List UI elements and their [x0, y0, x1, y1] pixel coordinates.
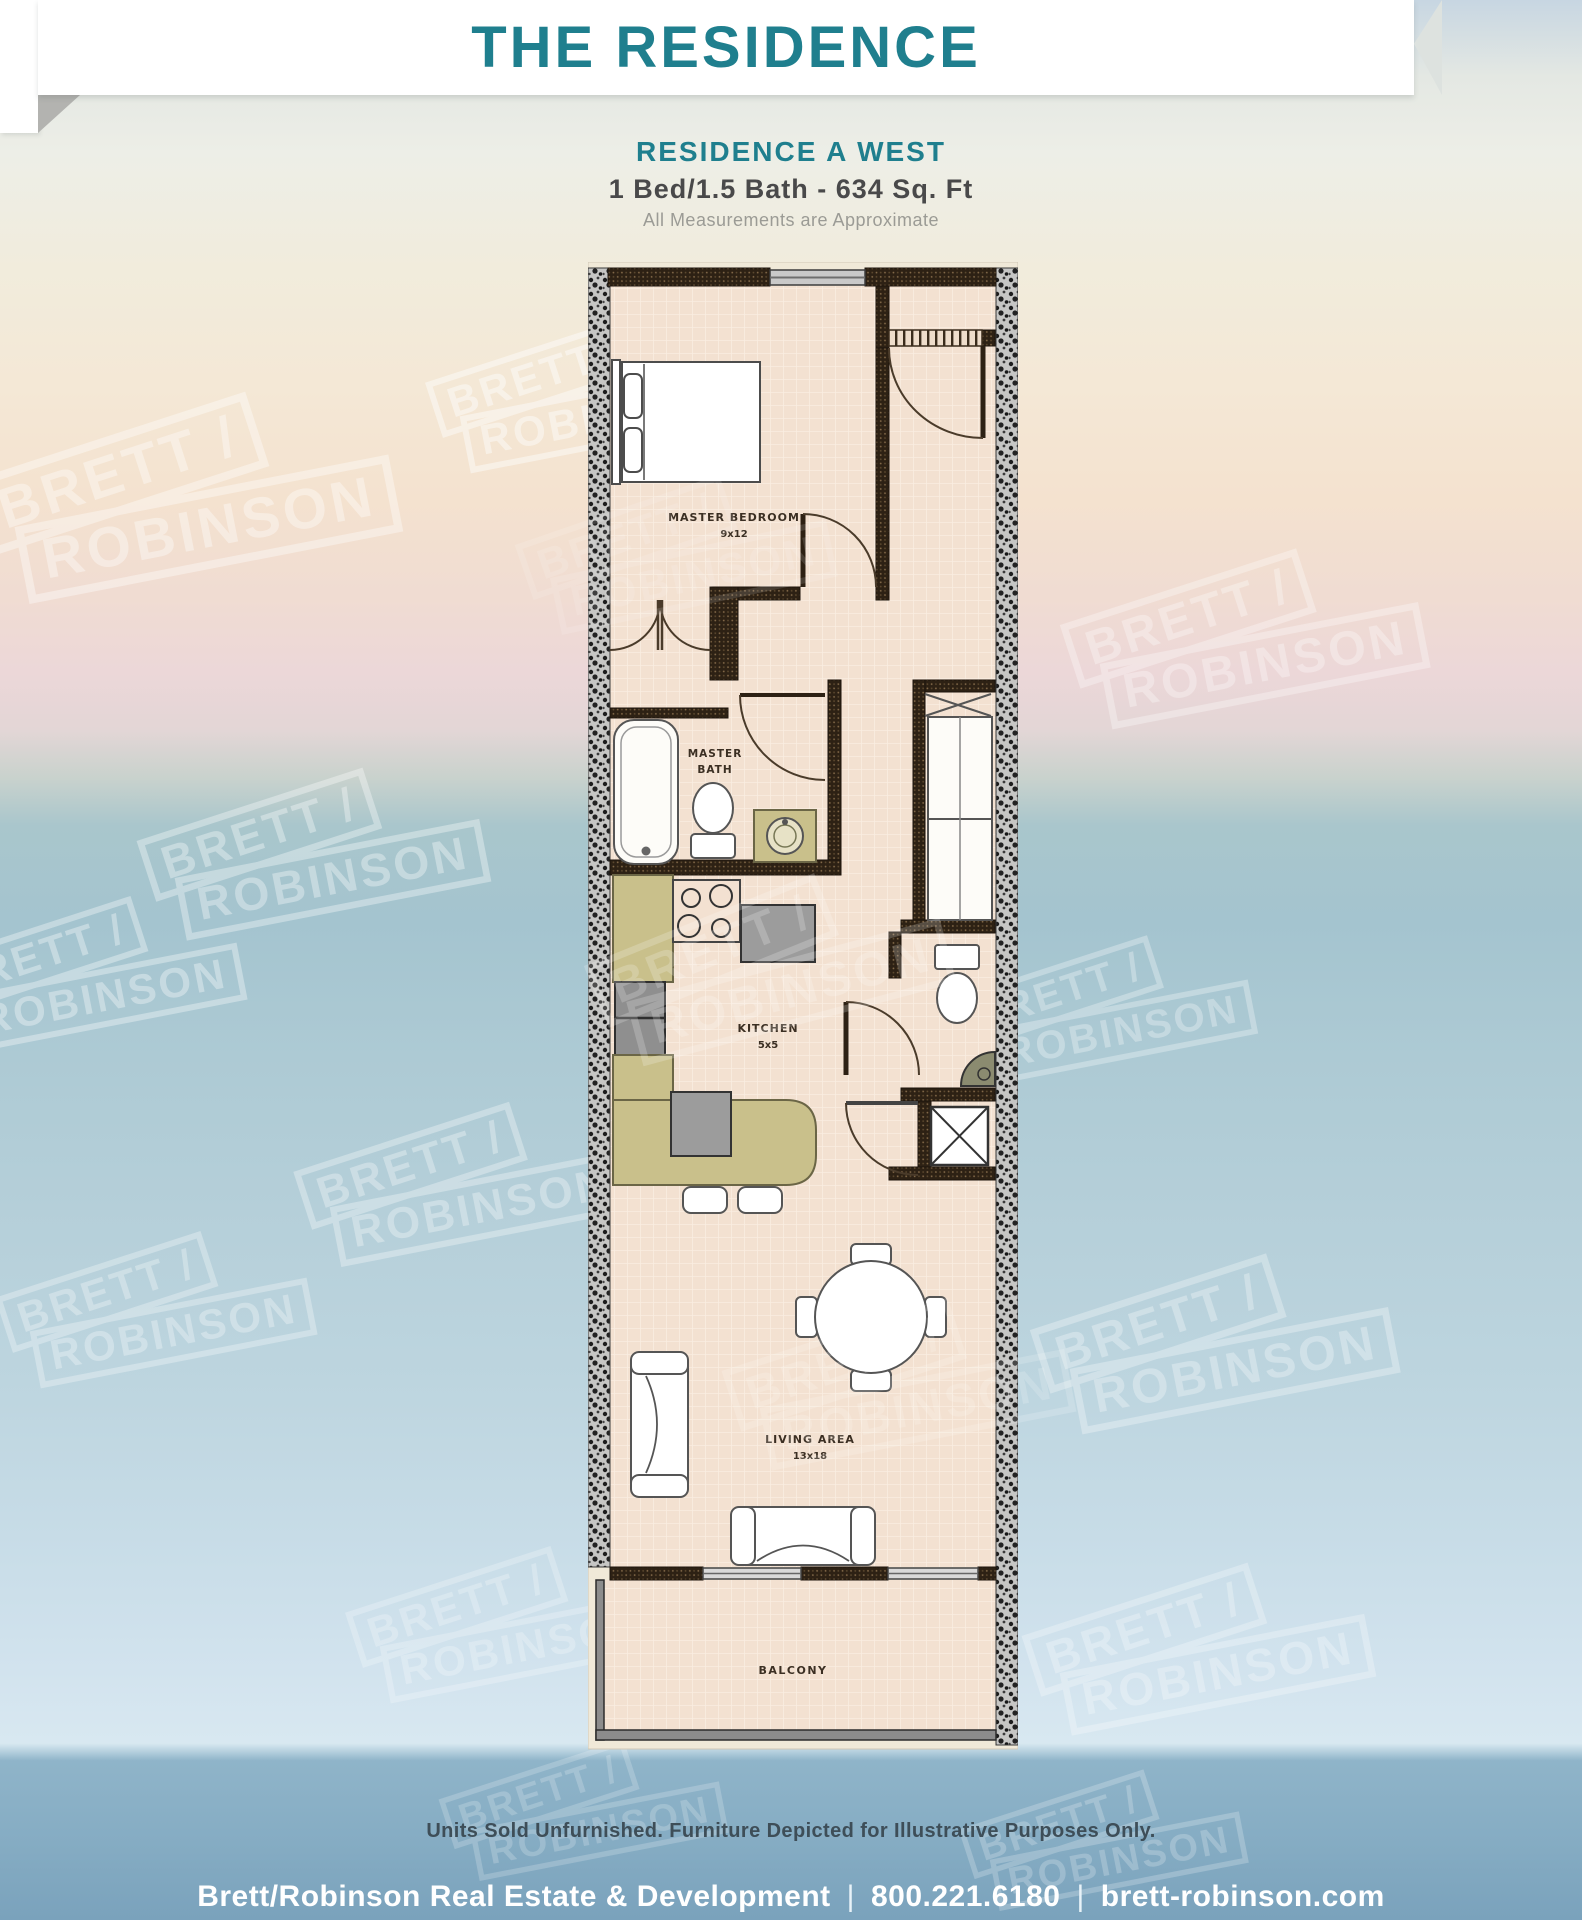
ribbon-left-fold — [38, 95, 80, 133]
brand-watermark: BRETT / ROBINSON — [345, 1544, 615, 1715]
footer-website: brett-robinson.com — [1101, 1880, 1385, 1913]
brand-watermark: BRETT / ROBINSON — [0, 894, 195, 1065]
brand-watermark-line2: ROBINSON — [175, 819, 492, 941]
brand-watermark: BRETT / ROBINSON — [136, 766, 433, 954]
window — [770, 270, 865, 285]
loveseat — [631, 1352, 688, 1497]
bed — [612, 360, 760, 484]
brand-watermark-line2: ROBINSON — [1060, 1614, 1377, 1736]
footer-company: Brett/Robinson Real Estate & Development — [197, 1880, 830, 1913]
refrigerator — [615, 982, 665, 1055]
brand-watermark-line2: ROBINSON — [30, 1278, 318, 1389]
master-bedroom-dims: 9x12 — [720, 529, 747, 540]
kitchen-counter — [613, 875, 673, 982]
balcony-label: BALCONY — [758, 1664, 827, 1677]
disclaimer-text: Units Sold Unfurnished. Furniture Depict… — [0, 1820, 1582, 1843]
island-sink — [671, 1092, 731, 1156]
brand-watermark: BRETT / ROBINSON — [1030, 1252, 1341, 1449]
brand-watermark-line2: ROBINSON — [1070, 1307, 1401, 1434]
footer-contact: Brett/Robinson Real Estate & Development… — [0, 1880, 1582, 1914]
footer-divider: | — [1060, 1880, 1100, 1913]
master-bath-label1: MASTER — [688, 748, 743, 760]
brand-watermark-line1: BRETT / — [0, 896, 149, 1018]
master-bedroom-label: MASTER BEDROOM — [668, 511, 800, 524]
brand-watermark: BRETT / ROBINSON — [1021, 1561, 1318, 1749]
kitchen-label: KITCHEN — [737, 1022, 798, 1035]
brand-watermark-line2: ROBINSON — [985, 979, 1259, 1084]
brand-watermark-line1: BRETT / — [1030, 1253, 1287, 1393]
vanity-sink — [754, 810, 816, 862]
stove — [673, 880, 740, 942]
brand-watermark-line1: BRETT / — [1022, 1562, 1268, 1696]
footer-divider: | — [831, 1880, 871, 1913]
page-title: THE RESIDENCE — [471, 14, 981, 81]
brand-watermark: BRETT / ROBINSON — [0, 390, 332, 621]
brand-watermark-line1: BRETT / — [137, 767, 383, 901]
living-area-label: LIVING AREA — [765, 1433, 855, 1446]
flyer-page: BRETT / ROBINSON BRETT / ROBINSON BRETT … — [0, 0, 1582, 1920]
brand-watermark-line2: ROBINSON — [1100, 602, 1431, 729]
ribbon-left-tab — [0, 0, 38, 133]
sofa — [731, 1507, 875, 1565]
kitchen-appliance — [741, 905, 815, 962]
brand-watermark-line1: BRETT / — [293, 1102, 528, 1230]
footer-phone: 800.221.6180 — [871, 1880, 1061, 1913]
brand-watermark-line1: BRETT / — [345, 1546, 569, 1668]
toilet — [691, 783, 735, 858]
ribbon-right-fold — [1414, 0, 1442, 95]
brand-watermark: BRETT / ROBINSON — [293, 1100, 577, 1280]
brand-watermark: BRETT / ROBINSON — [0, 1229, 265, 1400]
brand-watermark: BRETT / ROBINSON — [1060, 547, 1371, 744]
title-ribbon: THE RESIDENCE — [38, 0, 1414, 95]
master-bath-label2: BATH — [697, 764, 732, 776]
brand-watermark-line1: BRETT / — [0, 391, 270, 556]
brand-watermark-line1: BRETT / — [1060, 548, 1317, 688]
brand-watermark-line2: ROBINSON — [330, 1151, 633, 1267]
residence-name: RESIDENCE A WEST — [0, 136, 1582, 168]
half-bath-toilet — [935, 945, 979, 1023]
bathtub — [614, 720, 678, 864]
brand-watermark-line2: ROBINSON — [0, 943, 248, 1054]
residence-specs: 1 Bed/1.5 Bath - 634 Sq. Ft — [0, 174, 1582, 205]
measurements-note: All Measurements are Approximate — [0, 210, 1582, 231]
living-area-dims: 13x18 — [793, 1451, 827, 1462]
kitchen-dims: 5x5 — [758, 1040, 778, 1051]
brand-watermark-line2: ROBINSON — [15, 454, 404, 604]
laundry-closet — [925, 694, 992, 920]
brand-watermark: BRETT / ROBINSON — [438, 1738, 681, 1892]
brand-watermark-line1: BRETT / — [0, 1231, 219, 1353]
floor-plan: MASTER BEDROOM 9x12 MAS — [588, 262, 1018, 1752]
kitchen-counter-lower — [613, 1055, 673, 1100]
